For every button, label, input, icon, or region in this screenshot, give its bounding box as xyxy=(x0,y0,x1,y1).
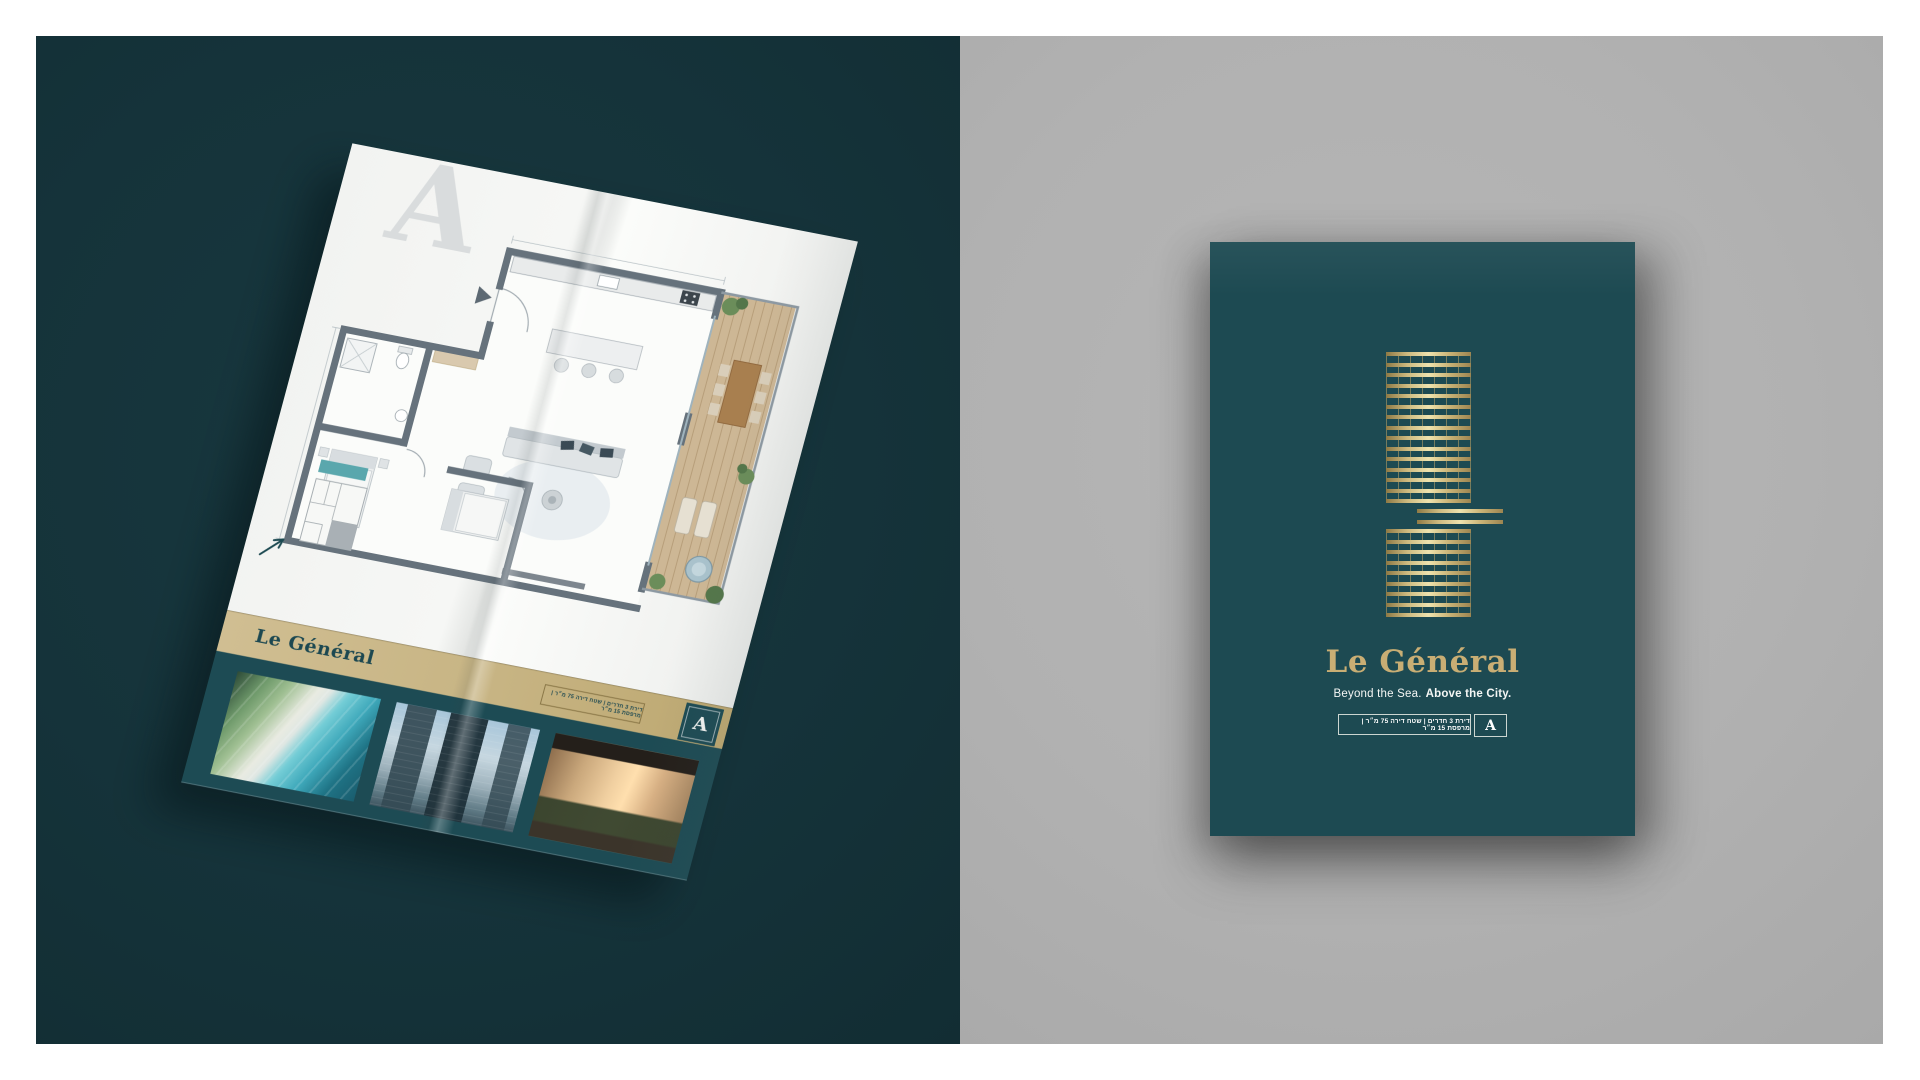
logo-floor-bar xyxy=(1386,436,1471,440)
logo-floor-bar xyxy=(1386,550,1471,554)
unit-letter-badge: A xyxy=(677,702,724,746)
living-room-interior-photo xyxy=(528,733,699,863)
tagline-bold: Above the City. xyxy=(1426,688,1512,700)
logo-floor-bar xyxy=(1386,489,1471,493)
logo-floor-bar xyxy=(1386,613,1471,617)
logo-floor-bar xyxy=(1386,540,1471,544)
folded-brochure: A xyxy=(181,143,858,880)
logo-floor-bar xyxy=(1386,447,1471,451)
cover-tagline: Beyond the Sea.Above the City. xyxy=(1210,688,1635,700)
logo-floor-bar xyxy=(1386,582,1471,586)
logo-floor-bar xyxy=(1386,571,1471,575)
building-logo-top-block xyxy=(1386,352,1471,503)
logo-floor-bar xyxy=(1386,592,1471,596)
logo-floor-bar xyxy=(1386,426,1471,430)
cover-title: Le Général xyxy=(1210,644,1635,680)
brochure-sheet: A xyxy=(227,143,858,708)
logo-floor-bar xyxy=(1386,457,1471,461)
cover-spec-row: דירת 3 חדרים | שטח דירה 75 מ״ר | מרפסת 1… xyxy=(1210,714,1635,737)
logo-floor-bar xyxy=(1386,561,1471,565)
logo-floor-bar xyxy=(1386,529,1471,533)
floor-plan xyxy=(265,199,828,668)
logo-floor-bar xyxy=(1386,363,1471,367)
logo-floor-bar xyxy=(1386,603,1471,607)
cover-unit-letter: A xyxy=(1485,718,1496,734)
logo-floor-bar xyxy=(1386,478,1471,482)
building-logo xyxy=(1386,352,1506,617)
tagline-regular: Beyond the Sea. xyxy=(1334,688,1422,700)
logo-floor-bar xyxy=(1417,520,1503,524)
logo-floor-bar xyxy=(1386,415,1471,419)
logo-floor-bar xyxy=(1386,394,1471,398)
brochure-cover-card: Le Général Beyond the Sea.Above the City… xyxy=(1210,242,1635,836)
right-panel-gray: Le Général Beyond the Sea.Above the City… xyxy=(960,36,1883,1044)
left-panel-teal: A xyxy=(36,36,960,1044)
building-logo-bottom-block xyxy=(1386,529,1471,617)
tower-exterior-photo xyxy=(369,702,540,832)
unit-letter: A xyxy=(677,702,724,746)
logo-floor-bar xyxy=(1386,405,1471,409)
cover-specs-box: דירת 3 חדרים | שטח דירה 75 מ״ר | מרפסת 1… xyxy=(1338,714,1471,735)
logo-floor-bar xyxy=(1386,373,1471,377)
logo-floor-bar xyxy=(1386,384,1471,388)
logo-floor-bar xyxy=(1386,468,1471,472)
logo-floor-bar xyxy=(1417,509,1503,513)
pool-aerial-photo xyxy=(210,671,381,801)
logo-floor-bar xyxy=(1386,499,1471,503)
cover-unit-letter-badge: A xyxy=(1474,714,1507,737)
building-logo-mid-block xyxy=(1417,509,1503,524)
logo-floor-bar xyxy=(1386,352,1471,356)
